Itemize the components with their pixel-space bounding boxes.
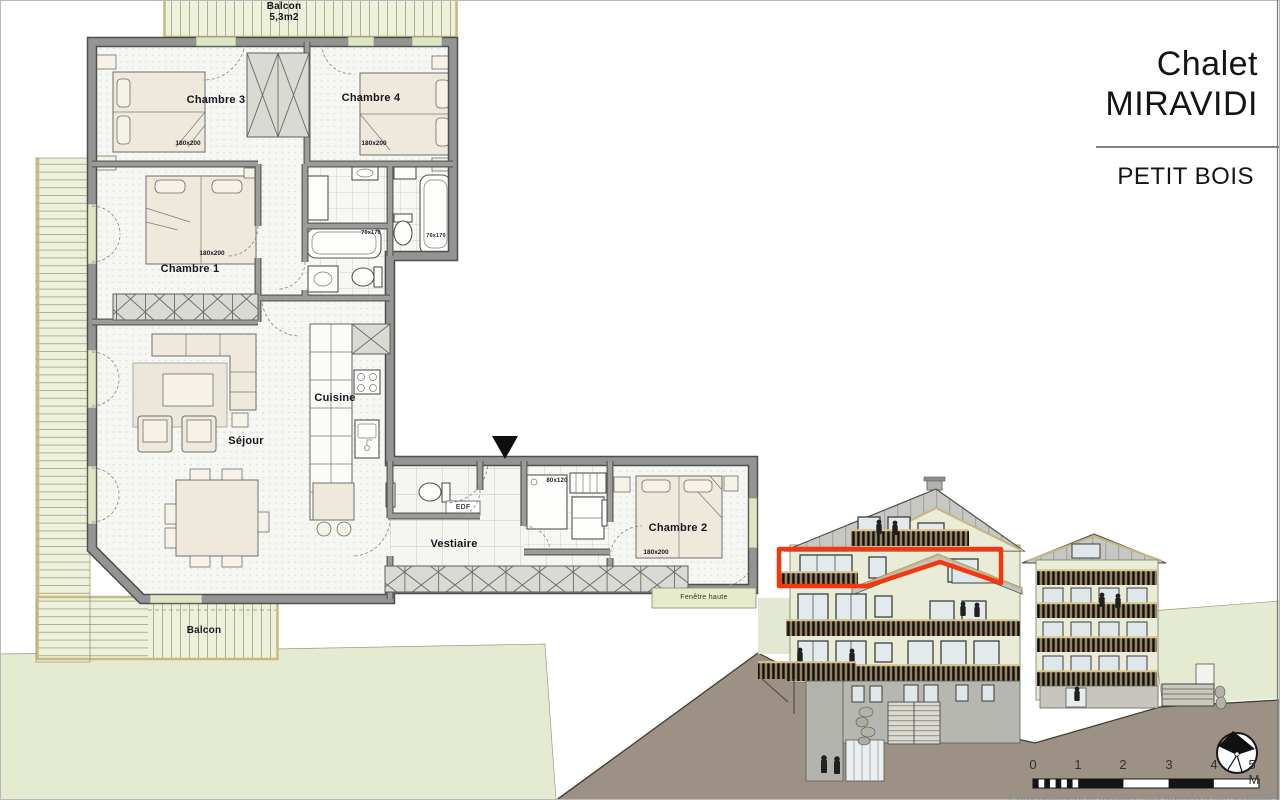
scale-tick-0: 0 [1029,757,1036,772]
bed-dim-chambre2: 180x200 [643,550,668,557]
room-label-vestiaire: Vestiaire [430,539,477,550]
shower-dim-label: 80x120 [546,478,567,484]
room-label-sejour: Séjour [228,436,263,447]
scale-tick-4: 4 [1210,757,1217,772]
entrance-marker-icon [492,436,518,459]
bed-dim-chambre3: 180x200 [175,141,200,148]
edf-box-label: EDF [456,504,471,511]
scale-tick-1: 1 [1074,757,1081,772]
sheet-graphic [0,0,1280,800]
room-area-balcon-top: 5,3m2 [269,13,298,23]
plan-sheet: Chalet MIRAVIDI PETIT BOIS Balcon 5,3m2 … [0,0,1280,800]
footer-disclaimer: L'ameublement et mobilier sont donnés à … [1000,792,1280,800]
chalet-name-line1: Chalet [1105,44,1258,84]
chalet-name-line2: MIRAVIDI [1105,84,1258,124]
project-name: PETIT BOIS [1117,163,1254,191]
scale-tick-5: 5 M [1249,757,1270,787]
title-block: Chalet MIRAVIDI [1105,44,1258,124]
room-label-balcon-top: Balcon [267,2,302,12]
room-label-chambre3: Chambre 3 [187,95,246,106]
fenetre-haute-label: Fenêtre haute [680,594,728,601]
scale-bar [1033,779,1259,788]
room-label-balcon-bottom: Balcon [187,626,222,636]
bed-dim-chambre1: 180x200 [199,251,224,258]
scale-tick-3: 3 [1165,757,1172,772]
bed-dim-chambre4: 180x200 [361,141,386,148]
room-label-chambre1: Chambre 1 [161,264,220,275]
bath-dim-a: 70x170 [361,231,381,237]
room-label-chambre2: Chambre 2 [649,523,708,534]
scale-tick-2: 2 [1119,757,1126,772]
bath-dim-b: 70x170 [426,234,446,240]
room-label-cuisine: Cuisine [314,393,355,404]
room-label-chambre4: Chambre 4 [342,93,401,104]
